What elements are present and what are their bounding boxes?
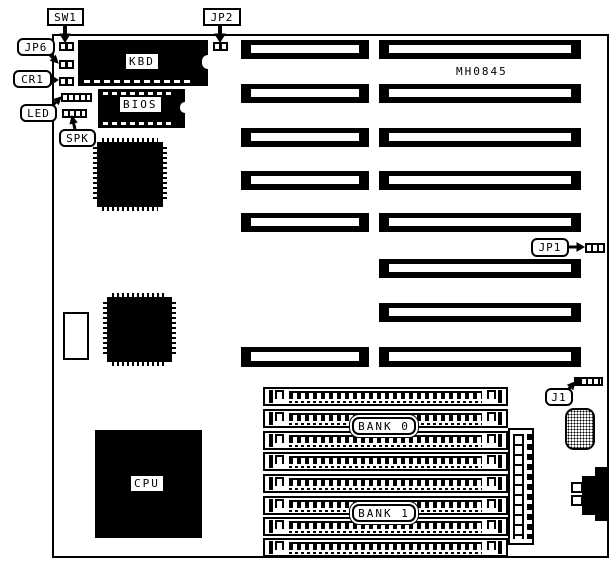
jp2-arrow <box>215 34 225 42</box>
sw1-arrow <box>60 34 70 42</box>
cr1-callout: CR1 <box>13 70 52 88</box>
j1-callout: J1 <box>545 388 573 406</box>
spk-callout: SPK <box>59 129 96 147</box>
jp6-callout: JP6 <box>17 38 55 56</box>
spk-arrow <box>70 116 77 124</box>
motherboard-diagram: MH0845 KBD BIOS CPU <box>0 0 616 565</box>
sw1-callout: SW1 <box>47 8 84 26</box>
jp1-arrow <box>577 243 584 251</box>
leader-lines <box>0 0 616 565</box>
jp1-callout: JP1 <box>531 238 569 257</box>
bank0-label: BANK 0 <box>352 417 416 435</box>
jp2-callout: JP2 <box>203 8 241 26</box>
bank1-label: BANK 1 <box>352 504 416 522</box>
led-callout: LED <box>20 104 57 122</box>
cr1-arrow <box>52 76 58 84</box>
